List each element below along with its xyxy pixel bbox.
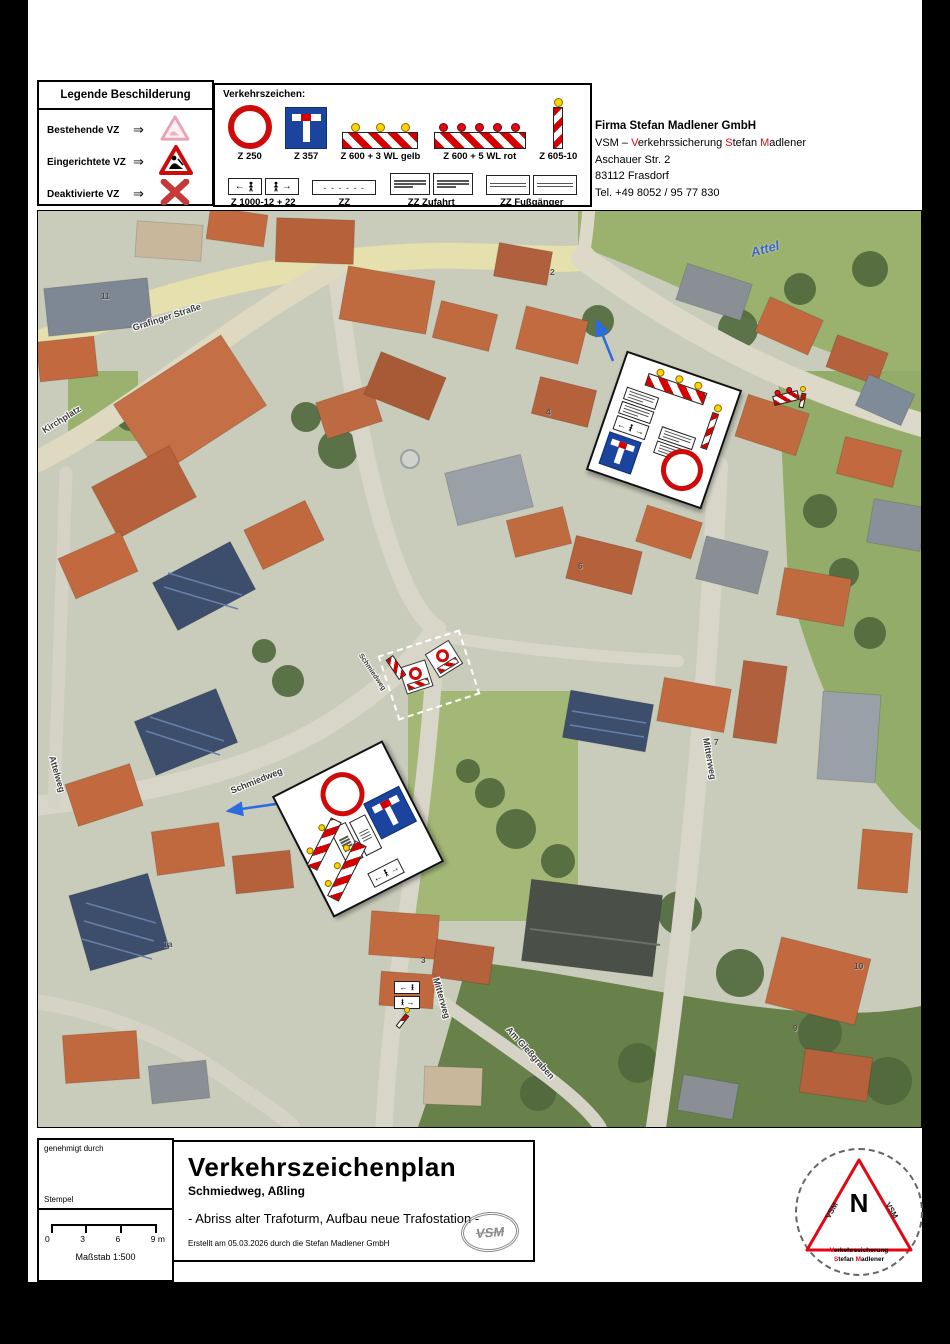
traffic-signs-panel: Verkehrszeichen: Z 250 Z 357 Z 600 + 3 W… [213, 83, 592, 207]
scale-bar-area: 0 3 6 9 m Maßstab 1:500 [39, 1210, 172, 1276]
dead-end-icon [599, 431, 642, 474]
barrier-5-lights-icon [434, 132, 526, 149]
house-number: 9 [793, 1023, 798, 1033]
plan-subtitle: Schmiedweg, Aßling [188, 1184, 519, 1198]
pedestrian-left-plate-icon: ← [228, 178, 262, 195]
north-letter: N [797, 1188, 921, 1219]
approval-box: genehmigt durch Stempel 0 3 6 9 m Maßsta… [37, 1138, 174, 1282]
arrow-glyph: ⇒ [133, 186, 159, 202]
house-number: 6 [578, 561, 583, 571]
red-x-icon [159, 179, 191, 210]
legend-item-installed: Eingerichtete VZ ⇒ [39, 146, 212, 178]
legend-title: Legende Beschilderung [37, 80, 214, 110]
barrier-icon [327, 841, 367, 902]
guide-post-icon [700, 412, 719, 450]
legend-box: Legende Beschilderung Bestehende VZ ⇒ Ei… [37, 80, 214, 206]
legend-item-existing: Bestehende VZ ⇒ [39, 114, 212, 146]
blank-plate-icon: - - - - - - [312, 180, 376, 195]
guide-post-icon [553, 107, 563, 149]
company-city: 83112 Frasdorf [595, 168, 917, 185]
company-street: Aschauer Str. 2 [595, 152, 917, 169]
company-name: Firma Stefan Madlener GmbH [595, 118, 917, 135]
text-plate-icon [533, 175, 577, 195]
house-number: 2 [550, 267, 555, 277]
sign-zz: - - - - - - ZZ [312, 180, 376, 208]
barrier-3-lights-icon [342, 132, 418, 149]
sign-z605: Z 605-10 [539, 98, 577, 162]
compass-line1: Verkehrssicherung [797, 1247, 921, 1254]
stamp-label: Stempel [44, 1195, 73, 1204]
company-info: Firma Stefan Madlener GmbH VSM – Verkehr… [595, 118, 917, 201]
text-plate-icon [433, 173, 473, 195]
signs-panel-title: Verkehrszeichen: [215, 85, 590, 100]
house-number: 1a [163, 939, 172, 949]
text-plate-icon [486, 175, 530, 195]
sign-z250: Z 250 [228, 105, 272, 162]
legend-item-deactivated: Deaktivierte VZ ⇒ [39, 178, 212, 210]
north-compass: N VSM VSM Verkehrssicherung Stefan Madle… [795, 1148, 923, 1276]
text-plate-icon [390, 173, 430, 195]
warning-triangle-faded-icon [159, 114, 191, 147]
company-brand-line: VSM – Verkehrssicherung Stefan Madlener [595, 135, 917, 152]
sign-z1000: ← → Z 1000-12 + 22 [228, 178, 299, 208]
aerial-map: Attel Grafinger Straße Kirchplatz Attelw… [37, 210, 922, 1128]
plan-title: Verkehrszeichenplan [188, 1152, 519, 1183]
house-number: 4 [546, 407, 551, 417]
mini-ped-plate: ← [394, 981, 420, 994]
arrow-glyph: ⇒ [133, 154, 159, 170]
no-vehicles-icon [228, 105, 272, 149]
sign-z600-5wl: Z 600 + 5 WL rot [434, 122, 526, 162]
mini-lamp [404, 1007, 410, 1013]
sign-zz-fussgaenger: ZZ Fußgänger [486, 175, 577, 208]
company-phone: Tel. +49 8052 / 95 77 830 [595, 185, 917, 202]
house-number: 10 [854, 961, 863, 971]
mini-lamp [800, 386, 806, 392]
compass-line2: Stefan Madlener [797, 1256, 921, 1263]
house-number: 11 [101, 291, 110, 301]
scale-label: Maßstab 1:500 [39, 1252, 172, 1262]
sign-z357: Z 357 [285, 107, 327, 162]
house-number: 3 [421, 955, 426, 965]
sign-z600-3wl: Z 600 + 3 WL gelb [341, 122, 421, 162]
approved-by-label: genehmigt durch [44, 1144, 104, 1153]
pedestrian-plate-icon: ←→ [367, 858, 405, 888]
aerial-photo [38, 211, 921, 1127]
sign-zz-zufahrt: ZZ Zufahrt [390, 173, 473, 208]
scale-bar [51, 1224, 157, 1226]
arrow-glyph: ⇒ [133, 122, 159, 138]
plan-page: Legende Beschilderung Bestehende VZ ⇒ Ei… [28, 0, 922, 1282]
pedestrian-right-plate-icon: → [265, 178, 299, 195]
dead-end-icon [285, 107, 327, 149]
post-lamp-icon [554, 98, 563, 107]
house-number: 7 [714, 737, 719, 747]
construction-triangle-icon [159, 145, 193, 180]
title-block: Verkehrszeichenplan Schmiedweg, Aßling -… [172, 1140, 535, 1262]
